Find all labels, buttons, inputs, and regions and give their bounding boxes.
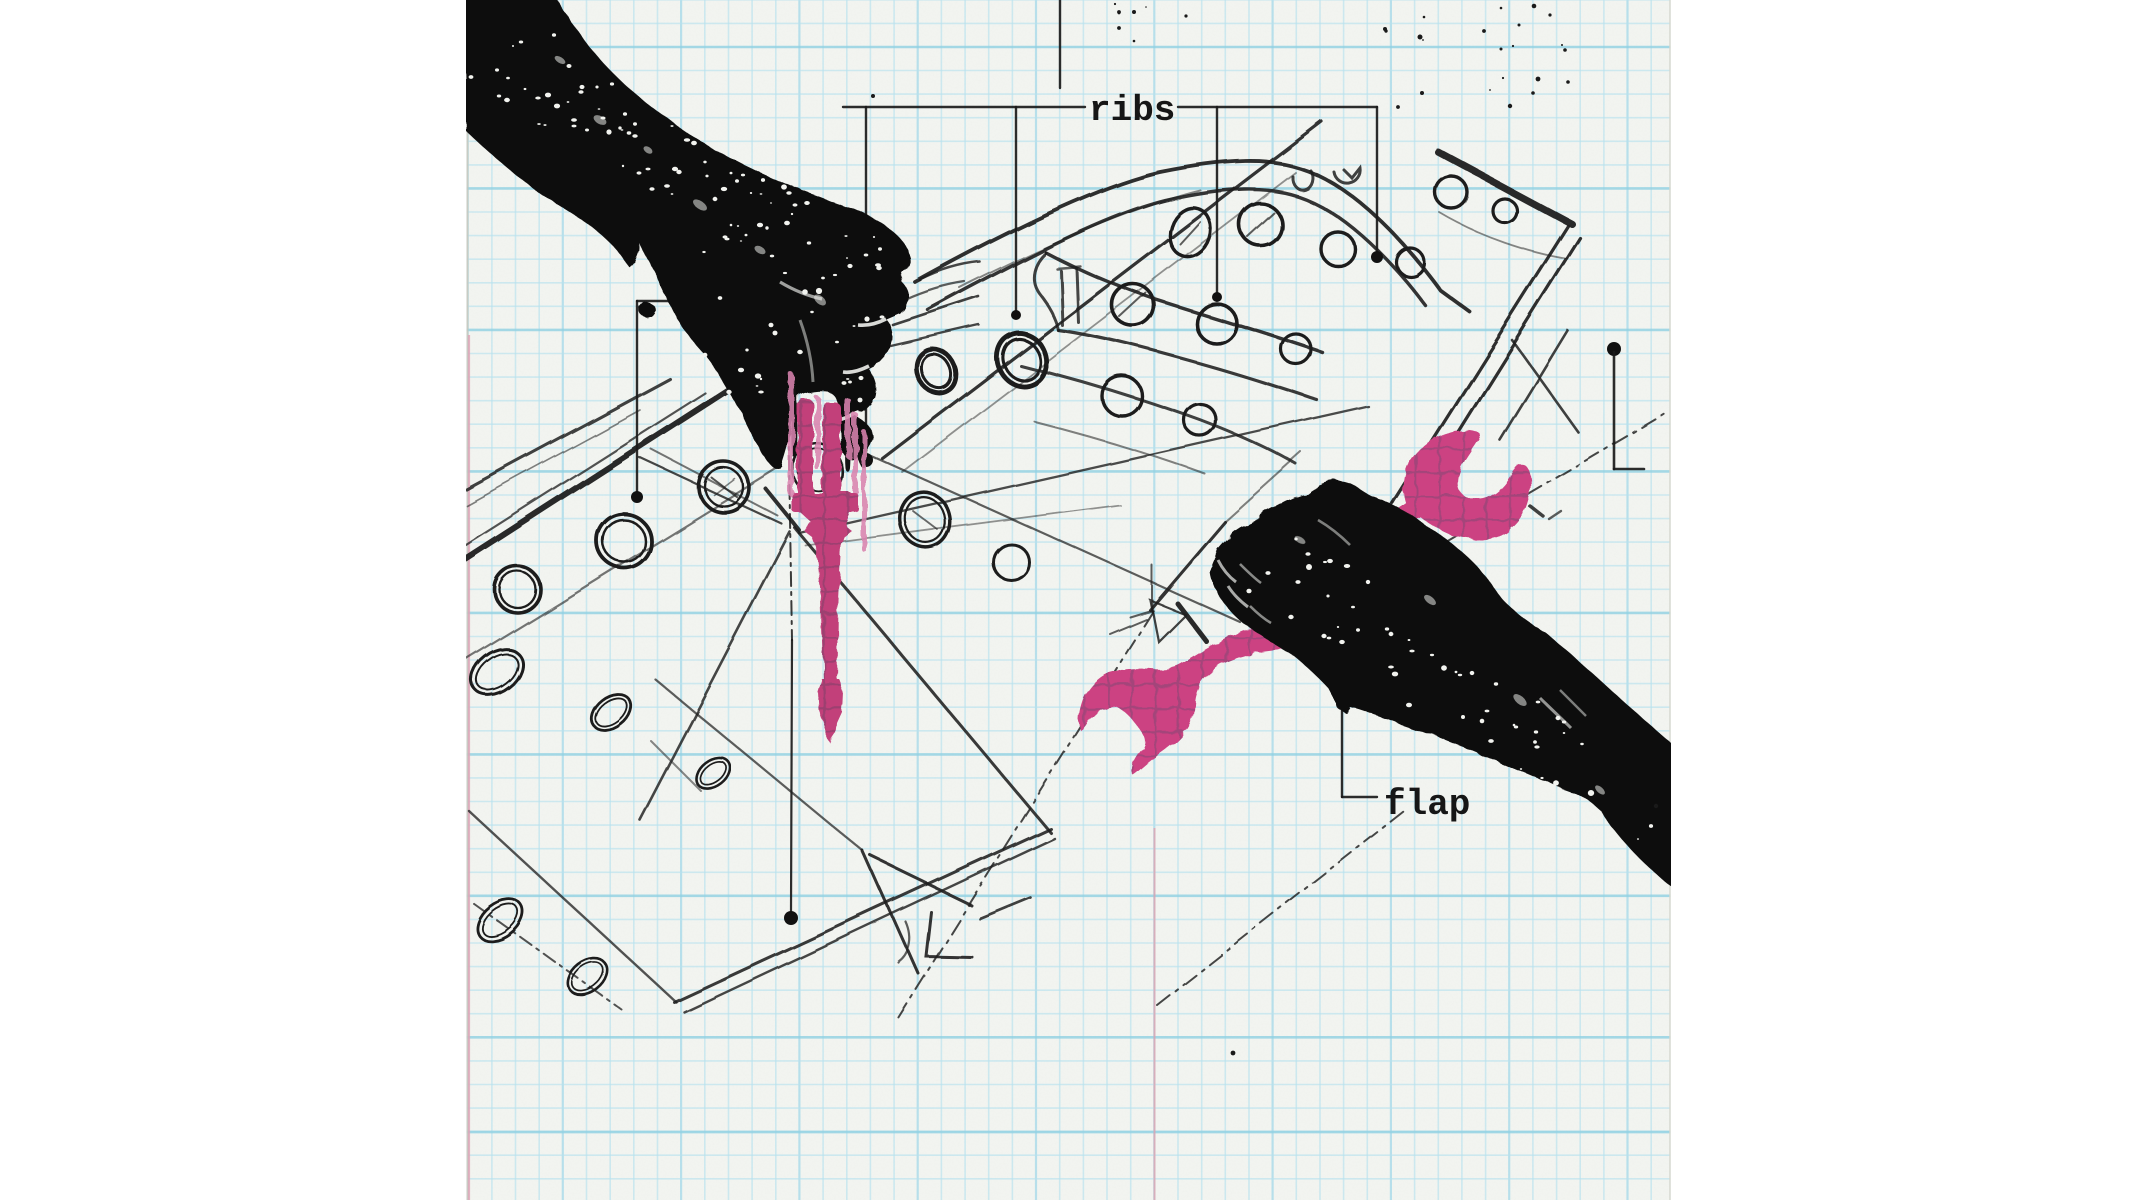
svg-text:flap: flap	[1384, 784, 1470, 825]
svg-text:ribs: ribs	[1089, 90, 1175, 131]
